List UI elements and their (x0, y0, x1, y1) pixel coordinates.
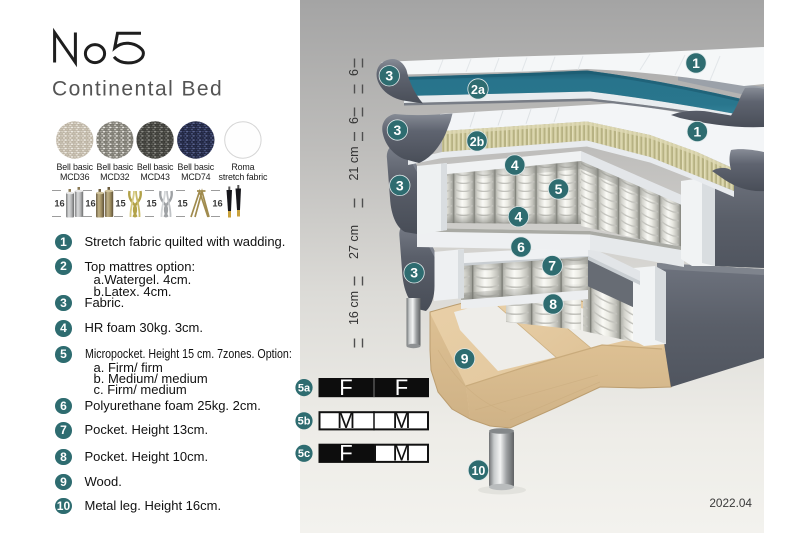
svg-text:3: 3 (410, 265, 418, 281)
svg-text:MCD74: MCD74 (181, 172, 211, 182)
svg-text:16 cm: 16 cm (347, 291, 361, 325)
svg-text:1: 1 (692, 55, 700, 71)
svg-text:16: 16 (85, 198, 95, 208)
svg-text:F: F (395, 375, 408, 400)
svg-text:15: 15 (177, 198, 187, 208)
svg-text:8: 8 (549, 296, 557, 312)
svg-text:5b: 5b (298, 416, 311, 428)
svg-text:F: F (339, 375, 352, 400)
svg-text:6: 6 (347, 117, 361, 124)
svg-text:2a: 2a (471, 83, 486, 97)
svg-text:5: 5 (555, 181, 563, 197)
svg-text:4: 4 (511, 157, 519, 173)
svg-text:M: M (337, 408, 355, 433)
svg-text:F: F (339, 441, 352, 466)
svg-text:M: M (392, 408, 410, 433)
svg-text:MCD36: MCD36 (60, 172, 90, 182)
svg-text:MCD32: MCD32 (100, 172, 130, 182)
svg-text:6: 6 (347, 69, 361, 76)
svg-text:10: 10 (471, 464, 485, 478)
svg-text:5c: 5c (298, 448, 310, 460)
svg-text:Bell basic: Bell basic (137, 162, 174, 172)
svg-text:9: 9 (461, 351, 469, 367)
svg-text:Bell basic: Bell basic (97, 162, 134, 172)
svg-text:stretch fabric: stretch fabric (219, 172, 268, 182)
svg-text:Bell basic: Bell basic (56, 162, 93, 172)
svg-text:Roma: Roma (231, 162, 254, 172)
svg-text:6: 6 (517, 239, 525, 255)
svg-text:16: 16 (54, 198, 64, 208)
svg-text:16: 16 (212, 198, 222, 208)
svg-text:15: 15 (146, 198, 156, 208)
svg-text:15: 15 (115, 198, 125, 208)
svg-text:M: M (392, 441, 410, 466)
svg-text:4: 4 (515, 209, 523, 225)
svg-text:2022.04: 2022.04 (709, 496, 752, 510)
svg-text:3: 3 (396, 177, 404, 193)
svg-text:21 cm: 21 cm (347, 146, 361, 180)
svg-text:27 cm: 27 cm (347, 225, 361, 259)
svg-text:Continental Bed: Continental Bed (52, 78, 223, 101)
svg-text:3: 3 (394, 122, 402, 138)
svg-text:2b: 2b (470, 135, 485, 149)
svg-text:7: 7 (548, 258, 556, 274)
svg-text:1: 1 (693, 123, 701, 139)
svg-text:5a: 5a (298, 382, 311, 394)
svg-text:3: 3 (385, 68, 393, 84)
svg-text:Bell basic: Bell basic (178, 162, 215, 172)
svg-text:MCD43: MCD43 (140, 172, 170, 182)
